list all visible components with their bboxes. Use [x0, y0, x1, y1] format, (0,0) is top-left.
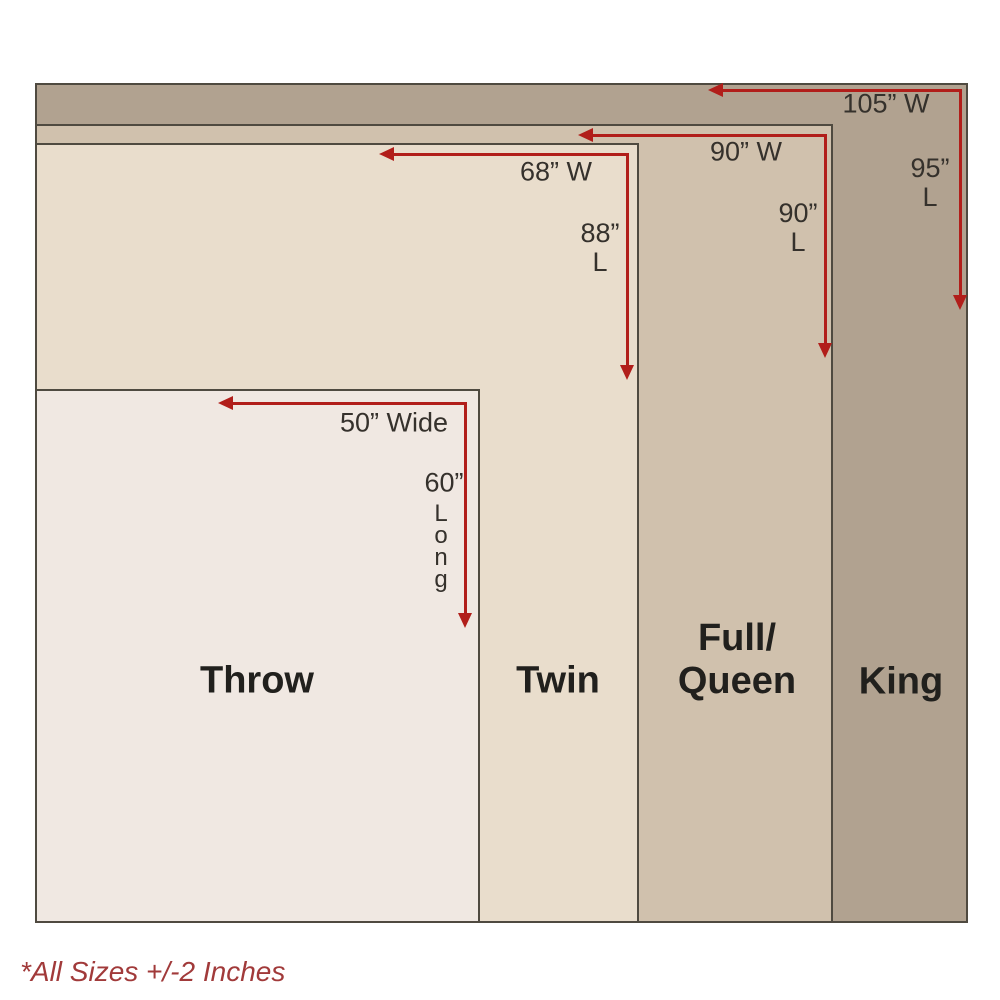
twin-width-label: 68” W — [520, 157, 592, 188]
full-queen-label-line2: Queen — [678, 660, 796, 702]
full-queen-label: Full/Queen — [678, 617, 796, 703]
throw-length-word: Long — [433, 503, 450, 591]
throw-rectangle — [35, 389, 480, 923]
full-queen-length-number: 90” — [778, 198, 817, 228]
king-width-label: 105” W — [842, 89, 929, 120]
throw-label: Throw — [200, 660, 314, 703]
twin-label: Twin — [516, 660, 600, 703]
king-length-number: 95” — [910, 153, 949, 183]
blanket-size-comparison-diagram: 105” W 95”L 90” W 90”L 68” W 88”L 50” Wi… — [0, 0, 1000, 1000]
twin-length-arrow-line — [626, 153, 629, 367]
arrow-down-icon — [953, 295, 967, 310]
throw-width-label: 50” Wide — [340, 408, 448, 439]
throw-width-arrow-line — [231, 402, 467, 405]
arrow-down-icon — [818, 343, 832, 358]
full-queen-width-label: 90” W — [710, 137, 782, 168]
twin-length-number: 88” — [580, 218, 619, 248]
king-length-unit: L — [922, 182, 937, 212]
full-queen-length-label: 90”L — [778, 199, 817, 257]
twin-length-unit: L — [592, 247, 607, 277]
twin-length-label: 88”L — [580, 219, 619, 277]
full-queen-length-unit: L — [790, 227, 805, 257]
full-queen-length-arrow-line — [824, 134, 827, 345]
arrow-down-icon — [620, 365, 634, 380]
twin-width-arrow-line — [392, 153, 629, 156]
arrow-down-icon — [458, 613, 472, 628]
king-length-label: 95”L — [910, 154, 949, 212]
king-label: King — [859, 661, 943, 704]
king-length-arrow-line — [959, 89, 962, 297]
footnote: *All Sizes +/-2 Inches — [20, 956, 285, 988]
throw-length-number: 60” — [424, 468, 463, 499]
full-queen-label-line1: Full/ — [698, 617, 776, 659]
throw-length-arrow-line — [464, 402, 467, 613]
